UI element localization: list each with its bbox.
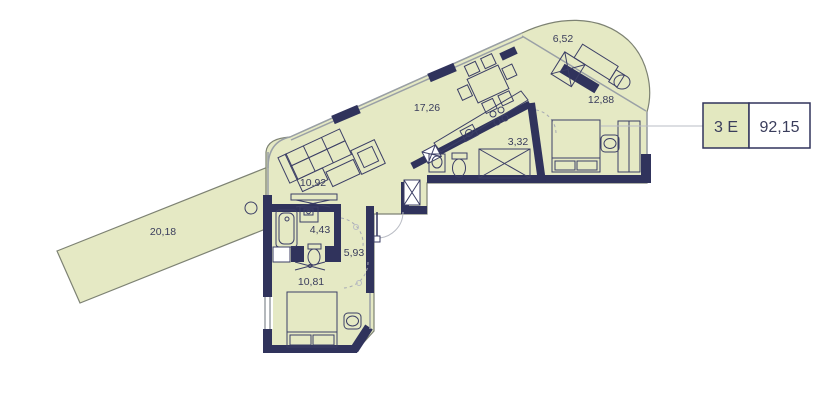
room-area-label: 17,26 (414, 102, 440, 114)
room-area-label: 4,43 (310, 224, 331, 236)
bathroom1-south-wall (291, 246, 304, 262)
bathroom1-east-wall (334, 204, 341, 247)
room-area-label: 10,81 (298, 276, 324, 288)
bedroom1-south-wall (263, 345, 357, 353)
washing-machine-icon (273, 247, 290, 262)
door-handle-icon (374, 236, 380, 242)
room-area-label: 20,18 (150, 226, 176, 238)
room-area-label: 5,93 (344, 247, 365, 259)
hallway-east-wall (366, 206, 374, 293)
total-area-label: 92,15 (759, 119, 799, 136)
wardrobe-icon (404, 180, 420, 205)
room-area-label: 3,32 (508, 136, 529, 148)
bedroom1-west-window (262, 297, 273, 329)
east-wall-segment (641, 154, 651, 183)
room-area-label: 12,88 (588, 94, 614, 106)
bathroom1-south-wall (325, 246, 341, 262)
floor-plan-canvas: 6,52 12,88 17,26 3,32 10,92 4,43 5,93 10… (0, 0, 839, 412)
entrance-door-swing-icon (377, 212, 403, 238)
apartment-type-label: 3 Е (714, 119, 738, 136)
bathroom1-north-wall (263, 204, 341, 212)
room-area-label: 10,92 (300, 177, 326, 189)
room-area-label: 6,52 (553, 33, 574, 45)
floor-plan-drawing: 6,52 12,88 17,26 3,32 10,92 4,43 5,93 10… (0, 0, 839, 412)
area-badge: 3 Е 92,15 (703, 103, 810, 148)
